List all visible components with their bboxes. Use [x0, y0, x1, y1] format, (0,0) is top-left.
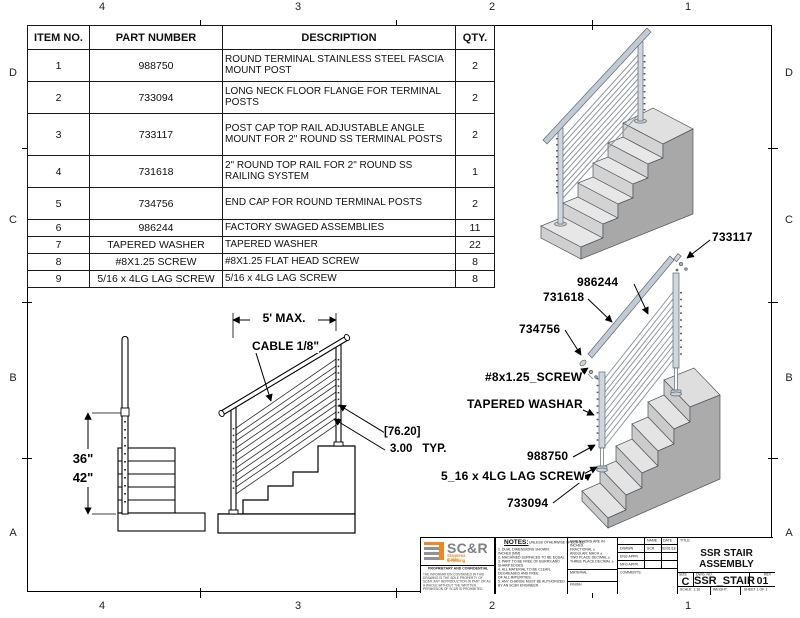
screw-part — [679, 262, 682, 265]
span-dimension-label: 5' MAX. — [250, 312, 318, 325]
bom-part: #8X1.25 SCREW — [90, 254, 223, 271]
height-36-label: 36" — [62, 449, 104, 468]
callout-flange: 733094 — [507, 497, 548, 510]
screw-part — [588, 374, 593, 379]
bom-item: 4 — [28, 156, 90, 188]
terminal-post-2d — [231, 407, 236, 514]
finish-label: FINISH — [570, 583, 581, 587]
side-view-2d — [88, 337, 205, 532]
bom-part: 988750 — [90, 50, 223, 82]
drawing-sheet: 4 3 2 1 4 3 2 1 D C B A D C B A — [0, 0, 800, 618]
bom-qty: 8 — [456, 254, 495, 271]
bom-qty: 2 — [456, 188, 495, 220]
callout-post-cap: 733117 — [712, 231, 753, 244]
screw-part — [589, 370, 592, 373]
notes-cell: NOTES: UNLESS OTHERWISE SPECIFIED 1. DUA… — [495, 538, 567, 594]
terminal-post-2d — [336, 343, 341, 446]
post-foot — [334, 442, 343, 446]
bom-part: 5/16 x 4LG LAG SCREW — [90, 271, 223, 288]
bom-desc: POST CAP TOP RAIL ADJUSTABLE ANGLE MOUNT… — [223, 114, 456, 156]
callout-post: 988750 — [527, 450, 568, 463]
callout-washer: TAPERED WASHAR — [467, 398, 583, 411]
bom-qty: 1 — [456, 156, 495, 188]
material-label: MATERIAL — [570, 571, 587, 575]
proprietary-title: PROPRIETARY AND CONFIDENTIAL — [428, 567, 488, 571]
brand-sub2: & Railing — [447, 559, 465, 563]
drawn-name: SCR — [647, 547, 654, 551]
bom-desc: END CAP FOR ROUND TERMINAL POSTS — [223, 188, 456, 220]
bom-qty: 11 — [456, 220, 495, 237]
bom-header-part: PART NUMBER — [90, 26, 223, 50]
proprietary-body: THE INFORMATION CONTAINED IN THIS DRAWIN… — [423, 573, 493, 591]
floor-flange-base — [671, 392, 682, 396]
bom-qty: 2 — [456, 114, 495, 156]
name-header: NAME — [647, 539, 657, 543]
bom-item: 6 — [28, 220, 90, 237]
post-foot — [229, 510, 238, 514]
approvals-cell: NAME DATE DRAWN SCR 02/01/18 ENG APPR. M… — [617, 538, 677, 594]
bom-row: 3 733117 POST CAP TOP RAIL ADJUSTABLE AN… — [28, 114, 495, 156]
post-cap-part — [674, 254, 682, 262]
terminal-post — [558, 128, 563, 224]
spacing-inch-label: 3.00 — [390, 443, 412, 456]
bom-part: 731618 — [90, 156, 223, 188]
eng-appr-label: ENG APPR. — [620, 555, 639, 559]
bom-desc: 5/16 x 4LG LAG SCREW — [223, 271, 456, 288]
bom-desc: 2" ROUND TOP RAIL FOR 2" ROUND SS RAILIN… — [223, 156, 456, 188]
bom-desc: LONG NECK FLOOR FLANGE FOR TERMINAL POST… — [223, 82, 456, 114]
date-header: DATE — [663, 539, 672, 543]
bom-item: 7 — [28, 237, 90, 254]
bom-row: 9 5/16 x 4LG LAG SCREW 5/16 x 4LG LAG SC… — [28, 271, 495, 288]
mfg-appr-label: MFG APPR. — [620, 563, 639, 567]
bom-header-desc: DESCRIPTION — [223, 26, 456, 50]
stair-profile — [218, 446, 355, 514]
terminal-post — [599, 372, 605, 448]
bom-row: 7 TAPERED WASHER TAPERED WASHER 22 — [28, 237, 495, 254]
callout-end-cap: 734756 — [519, 323, 560, 336]
bom-row: 8 #8X1.25 SCREW #8X1.25 FLAT HEAD SCREW … — [28, 254, 495, 271]
flange-neck — [601, 448, 604, 466]
notes-body: 1. DUAL DIMENSIONS SHOWN: INCHES [MM] 2.… — [498, 548, 568, 588]
screw-part — [685, 268, 688, 271]
bom-desc: ROUND TERMINAL STAINLESS STEEL FASCIA MO… — [223, 50, 456, 82]
bom-item: 2 — [28, 82, 90, 114]
spacing-typ-label: TYP. — [422, 443, 446, 456]
screw-part — [676, 269, 678, 271]
height-42-label: 42" — [62, 468, 104, 487]
title-cell: TITLE: SSR STAIR ASSEMBLY SIZE C DWG. NO… — [677, 538, 774, 594]
bom-qty: 8 — [456, 271, 495, 288]
sheet-label: SHEET 1 OF 1 — [744, 588, 767, 592]
bom-item: 5 — [28, 188, 90, 220]
bom-part: 733094 — [90, 82, 223, 114]
notes-label: NOTES: — [504, 539, 529, 546]
scale-value: SCALE: 1:16 — [680, 588, 700, 592]
bom-header-item: ITEM NO. — [28, 26, 90, 50]
bom-qty: 22 — [456, 237, 495, 254]
spacing-mm-label: [76.20] — [384, 426, 420, 439]
drawing-title: SSR STAIR ASSEMBLY — [678, 548, 775, 570]
scr-logo-icon — [424, 542, 444, 560]
bom-row: 4 731618 2" ROUND TOP RAIL FOR 2" ROUND … — [28, 156, 495, 188]
bom-row: 2 733094 LONG NECK FLOOR FLANGE FOR TERM… — [28, 82, 495, 114]
end-cap-part — [579, 359, 587, 367]
drawn-label: DRAWN — [620, 547, 633, 551]
bom-desc: #8X1.25 FLAT HEAD SCREW — [223, 254, 456, 271]
callout-lag-screw: 5_16 x 4LG LAG SCREW — [441, 470, 585, 483]
bill-of-materials: ITEM NO. PART NUMBER DESCRIPTION QTY. 1 … — [27, 25, 495, 288]
title-block: SC&R Stainless Cable & Railing PROPRIETA… — [420, 537, 773, 593]
bom-row: 6 986244 FACTORY SWAGED ASSEMBLIES 11 — [28, 220, 495, 237]
weight-label: WEIGHT: — [713, 588, 728, 592]
exploded-isometric-view — [579, 254, 720, 528]
base-slab — [118, 513, 205, 531]
bom-qty: 2 — [456, 82, 495, 114]
tolerances-body: DIMENSIONS ARE IN INCHES FRACTIONAL ± AN… — [570, 540, 618, 564]
bom-row: 5 734756 END CAP FOR ROUND TERMINAL POST… — [28, 188, 495, 220]
bom-part: 733117 — [90, 114, 223, 156]
bom-row: 1 988750 ROUND TERMINAL STAINLESS STEEL … — [28, 50, 495, 82]
spacing-leader — [339, 405, 390, 436]
bom-item: 9 — [28, 271, 90, 288]
bom-qty: 2 — [456, 50, 495, 82]
callout-top-rail: 731618 — [543, 291, 584, 304]
callout-cables: 986244 — [577, 276, 618, 289]
cable-size-label: CABLE 1/8" — [252, 340, 319, 353]
flange-neck — [675, 368, 678, 390]
rail-connector — [121, 408, 129, 416]
base-slab — [218, 514, 355, 533]
title-label: TITLE: — [680, 539, 691, 543]
terminal-post — [673, 273, 679, 368]
bom-part: 986244 — [90, 220, 223, 237]
terminal-post-2d — [122, 337, 128, 515]
bom-item: 1 — [28, 50, 90, 82]
bom-part: 734756 — [90, 188, 223, 220]
tolerances-cell: DIMENSIONS ARE IN INCHES FRACTIONAL ± AN… — [567, 538, 617, 594]
bom-desc: FACTORY SWAGED ASSEMBLIES — [223, 220, 456, 237]
callout-screw: #8x1.25_SCREW — [485, 371, 582, 384]
bom-part: TAPERED WASHER — [90, 237, 223, 254]
floor-flange-base — [597, 468, 608, 472]
screw-part — [595, 376, 598, 379]
terminal-post — [638, 42, 643, 121]
comments-label: COMMENTS: — [620, 571, 641, 575]
bom-header-qty: QTY. — [456, 26, 495, 50]
bom-item: 3 — [28, 114, 90, 156]
logo-cell: SC&R Stainless Cable & Railing PROPRIETA… — [421, 538, 495, 594]
assembled-isometric-view — [541, 28, 693, 259]
bom-item: 8 — [28, 254, 90, 271]
drawn-date: 02/01/18 — [662, 547, 676, 551]
bom-desc: TAPERED WASHER — [223, 237, 456, 254]
